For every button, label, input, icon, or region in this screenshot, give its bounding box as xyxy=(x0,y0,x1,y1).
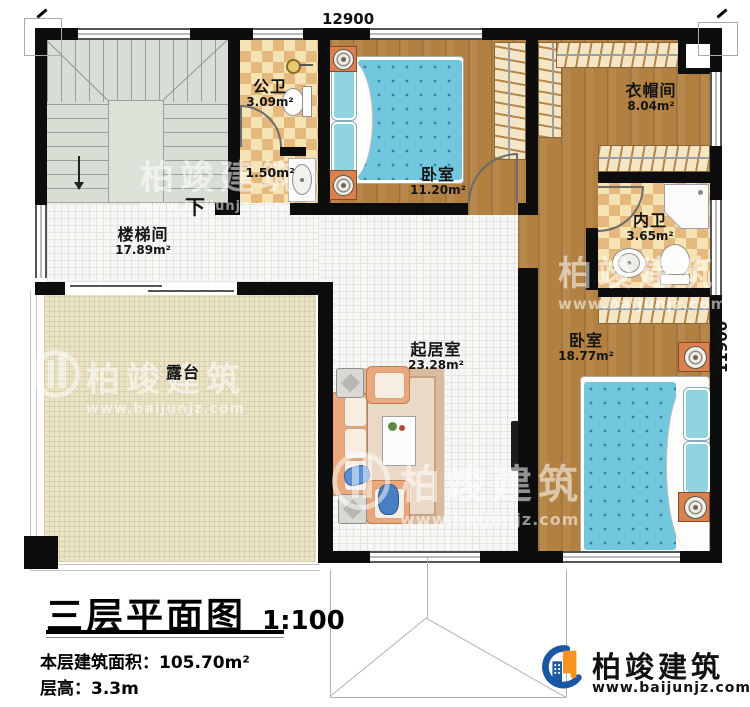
terrace-railing-bottom-outer xyxy=(30,570,320,571)
side-table-top xyxy=(336,368,364,398)
brand-url: www.baijunjz.com xyxy=(592,680,750,696)
label-bedroom-right-area: 18.77m² xyxy=(548,350,624,364)
label-bath-private-area: 3.65m² xyxy=(614,230,686,244)
window-top-bedroom xyxy=(370,28,482,40)
wall-lamp-icon xyxy=(286,59,301,74)
lamp-icon-2 xyxy=(333,175,354,196)
brand-logo-icon xyxy=(538,640,586,698)
label-cloakroom: 衣帽间 8.04m² xyxy=(608,82,694,114)
label-bath-public-name: 公卫 xyxy=(234,78,306,96)
wall-stub-door xyxy=(518,203,538,215)
label-bedroom-top: 卧室 11.20m² xyxy=(398,166,478,198)
wall-terrace-living xyxy=(318,282,333,563)
sliding-door-leaf-1 xyxy=(70,285,162,287)
label-stair-hall-name: 楼梯间 xyxy=(98,226,188,244)
window-top-stairs xyxy=(78,28,190,40)
watermark-2-bar1 xyxy=(48,360,54,388)
label-bedroom-top-area: 11.20m² xyxy=(398,184,478,198)
watermark-4-bar2 xyxy=(363,457,372,498)
toilet-tank-private xyxy=(660,274,690,285)
title-underline-thin xyxy=(46,637,284,638)
stair-down-text: 下 xyxy=(180,196,210,219)
lamp-icon-3 xyxy=(684,346,707,369)
cloakroom-rack-bottom xyxy=(598,145,710,172)
roof-line-bottom xyxy=(330,697,567,698)
floor-plan-canvas: 柏竣建筑 www.baijunjz.com 柏竣建筑 www.baijunjz.… xyxy=(0,0,750,707)
wall-corridor-bath xyxy=(586,228,598,290)
stair-landing xyxy=(108,100,164,203)
bed-right-pillow-1 xyxy=(684,388,710,440)
terrace-floor xyxy=(44,295,316,562)
stair-arrow-head-icon xyxy=(74,182,84,190)
label-bath-public-area: 3.09m² xyxy=(234,96,306,110)
label-stair-hall-area: 17.89m² xyxy=(98,244,188,258)
window-right-bath xyxy=(710,200,722,295)
watermark-4-ring xyxy=(332,452,390,510)
label-stair-hall: 楼梯间 17.89m² xyxy=(98,226,188,258)
corridor-opening-floor xyxy=(518,215,538,268)
wall-bath-rack xyxy=(598,288,710,297)
watermark-4-bar1 xyxy=(352,464,359,498)
wall-stub-hall xyxy=(215,203,240,215)
label-terrace: 露台 xyxy=(150,364,216,382)
wall-bath-bedroom xyxy=(318,40,330,203)
wall-bottom-3 xyxy=(680,551,722,563)
window-left-hall xyxy=(35,205,47,278)
label-living-name: 起居室 xyxy=(396,341,476,359)
lamp-icon-1 xyxy=(333,49,354,70)
window-bottom-living xyxy=(370,551,480,563)
label-bedroom-right: 卧室 18.77m² xyxy=(548,332,624,364)
label-bath-public: 公卫 3.09m² xyxy=(234,78,306,110)
label-stair-down: 下 xyxy=(180,196,210,219)
toilet-bowl-private xyxy=(660,244,690,278)
label-bedroom-right-name: 卧室 xyxy=(548,332,624,350)
wall-top-2 xyxy=(190,28,253,40)
roof-ridge xyxy=(427,558,428,618)
label-living: 起居室 23.28m² xyxy=(396,341,476,373)
sliding-door-leaf-2 xyxy=(148,290,234,292)
stair-direction-arrow xyxy=(78,156,80,182)
label-hall-small: 1.50m² xyxy=(238,166,302,180)
label-cloakroom-area: 8.04m² xyxy=(608,100,694,114)
bed-top-pillow-2 xyxy=(332,122,356,176)
break-tick-topleft xyxy=(36,8,47,18)
cloakroom-rack-top xyxy=(556,42,686,68)
dimension-top: 12900 xyxy=(322,10,374,28)
wall-hall-bottom-left xyxy=(35,282,65,295)
break-tick-topright xyxy=(716,8,727,18)
wall-top-4 xyxy=(482,28,722,40)
stairwell-floor xyxy=(47,40,228,203)
break-box-topleft xyxy=(24,18,62,56)
label-bedroom-top-name: 卧室 xyxy=(398,166,478,184)
bedroom-top-wardrobe xyxy=(494,42,526,160)
window-right-cloak xyxy=(710,72,722,146)
bed-top-blanket xyxy=(358,60,462,180)
wall-living-right xyxy=(518,268,538,563)
bedroom-right-rack xyxy=(598,296,710,324)
label-cloakroom-name: 衣帽间 xyxy=(608,82,694,100)
floor-area-text: 本层建筑面积：105.70m² xyxy=(40,648,250,673)
wall-lamp-stem xyxy=(299,64,313,66)
sofa-cushion-1 xyxy=(344,396,367,427)
sink-drain-icon-2 xyxy=(627,261,631,265)
stair-treads-upper xyxy=(47,40,228,102)
wall-bath-divider xyxy=(280,147,306,156)
stair-treads-right xyxy=(164,100,228,203)
break-box-topright xyxy=(698,22,738,56)
watermark-2-ring xyxy=(32,350,80,398)
wall-top-3 xyxy=(303,28,370,40)
window-top-bath xyxy=(253,28,303,40)
wall-cloak-bath xyxy=(598,172,710,183)
terrace-railing-bottom-inner xyxy=(36,564,320,565)
terrace-railing-left-inner xyxy=(36,290,37,565)
bed-right-blanket xyxy=(584,382,676,550)
wall-bedroom-cloak-divider xyxy=(526,40,538,203)
watermark-2-bar2 xyxy=(58,354,66,388)
dimension-right: 11900 xyxy=(713,317,731,377)
label-bath-private: 内卫 3.65m² xyxy=(614,212,686,244)
table-flower-icon xyxy=(399,425,405,431)
armchair-top-cushion xyxy=(374,372,405,399)
label-hall-small-area: 1.50m² xyxy=(238,166,302,180)
coffee-table xyxy=(382,416,416,466)
window-bottom-bedroom xyxy=(563,551,680,563)
terrace-railing-left-outer xyxy=(30,290,31,571)
floor-height-text: 层高：3.3m xyxy=(40,674,139,699)
label-terrace-name: 露台 xyxy=(150,364,216,382)
table-plant-icon xyxy=(388,422,397,431)
label-bath-private-name: 内卫 xyxy=(614,212,686,230)
terrace-corner-post xyxy=(24,536,58,569)
shower-head-icon xyxy=(698,190,703,195)
bed-right-pillow-2 xyxy=(684,442,710,494)
title-underline xyxy=(46,630,284,634)
wall-right-2 xyxy=(710,146,722,200)
bed-top-pillow-1 xyxy=(332,66,356,120)
wall-bedroom-top-bottom xyxy=(290,203,468,215)
lamp-icon-4 xyxy=(684,496,707,519)
label-living-area: 23.28m² xyxy=(396,359,476,373)
sliding-door xyxy=(65,282,237,295)
